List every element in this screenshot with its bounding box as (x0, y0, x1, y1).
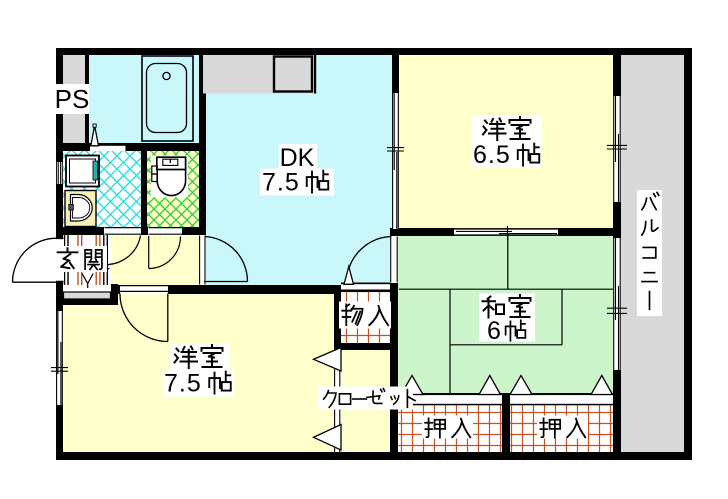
svg-text:7.5: 7.5 (164, 370, 202, 398)
svg-text:7.5: 7.5 (262, 169, 300, 197)
svg-text:6.5: 6.5 (473, 141, 511, 169)
svg-text:PS: PS (55, 84, 90, 114)
svg-text:6: 6 (487, 317, 501, 345)
